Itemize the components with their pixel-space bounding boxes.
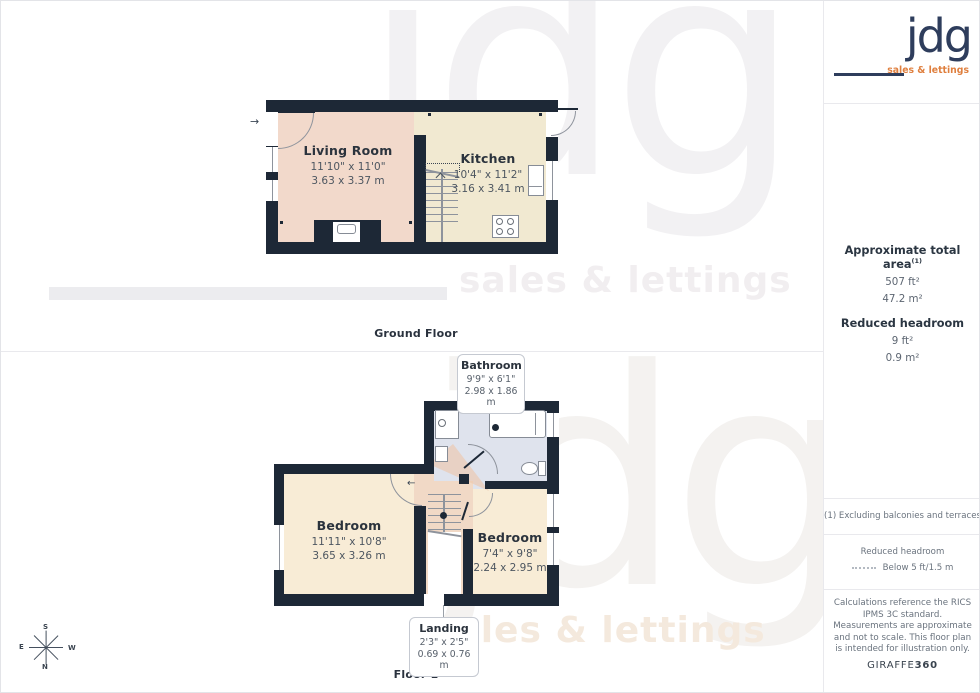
- room-dims-metric: 3.16 x 3.41 m: [432, 183, 544, 195]
- watermark-tagline-ground: sales & lettings: [459, 263, 792, 299]
- ground-floor-title: Ground Floor: [331, 327, 501, 340]
- compass-north: N: [42, 663, 48, 671]
- footnote: (1) Excluding balconies and terraces: [824, 511, 980, 521]
- toilet-tank: [538, 461, 546, 476]
- area-summary: Approximate total area(1) 507 ft² 47.2 m…: [824, 244, 980, 364]
- door-swing-arrow-icon: ←: [407, 479, 415, 489]
- disclaimer-text: Calculations reference the RICS IPMS 3C …: [832, 598, 973, 656]
- sidebar-divider: [824, 589, 980, 590]
- legend-value: Below 5 ft/1.5 m: [883, 563, 954, 573]
- room-dims-imperial: 10'4" x 11'2": [432, 169, 544, 181]
- room-name: Bedroom: [282, 518, 416, 533]
- toilet-bowl: [521, 462, 538, 475]
- compass-west: W: [68, 644, 76, 652]
- fireplace-hearth: [337, 224, 356, 234]
- provider-logo: GIRAFFE360: [824, 660, 980, 671]
- stairwell-wall-gap: [424, 594, 444, 606]
- room-name: Bedroom: [458, 530, 562, 545]
- area-metric: 47.2 m²: [824, 293, 980, 305]
- dimension-tick: [280, 221, 283, 224]
- area-title: Approximate total area(1): [824, 244, 980, 271]
- watermark-bar: [49, 287, 447, 300]
- headroom-title: Reduced headroom: [824, 317, 980, 330]
- room-dims-metric: 3.65 x 3.26 m: [282, 550, 416, 562]
- bathtub-divider: [535, 413, 536, 435]
- compass-south: S: [43, 623, 48, 631]
- hob-burner: [496, 218, 503, 225]
- dimension-tick: [409, 221, 412, 224]
- room-dims-metric: 0.69 x 0.76 m: [413, 649, 475, 671]
- window: [266, 179, 278, 202]
- landing-callout: Landing 2'3" x 2'5" 0.69 x 0.76 m: [409, 617, 479, 677]
- sidebar: jdg sales & lettings Approximate total a…: [824, 1, 980, 693]
- room-name: Landing: [413, 622, 475, 635]
- area-note-ref: (1): [912, 257, 922, 265]
- headroom-metric: 0.9 m²: [824, 352, 980, 364]
- room-dims-imperial: 9'9" x 6'1": [461, 374, 521, 385]
- window: [547, 493, 559, 528]
- wall: [266, 242, 558, 254]
- provider-name: GIRAFFE: [867, 660, 915, 671]
- dotted-line-icon: [852, 567, 876, 569]
- shower-head: [492, 424, 499, 431]
- dimension-tick: [539, 113, 542, 116]
- living-room-label: Living Room 11'10" x 11'0" 3.63 x 3.37 m: [279, 143, 417, 187]
- room-name: Kitchen: [432, 151, 544, 166]
- compass-rose: S E W N: [19, 621, 75, 673]
- hob: [492, 215, 519, 238]
- dimension-tick: [428, 113, 431, 116]
- provider-suffix: 360: [915, 660, 938, 671]
- sidebar-divider: [824, 103, 980, 104]
- watermark-tagline-floor1: sales & lettings: [433, 613, 766, 649]
- room-dims-metric: 2.24 x 2.95 m: [458, 562, 562, 574]
- entry-door-leaf: [278, 111, 315, 113]
- stairwell-void: [428, 532, 461, 594]
- room-dims-imperial: 7'4" x 9'8": [458, 548, 562, 560]
- sidebar-divider: [824, 534, 980, 535]
- sink-basin: [438, 419, 446, 427]
- bathroom-cupboard: [435, 446, 448, 462]
- entry-door-gap: [266, 112, 278, 149]
- window: [546, 160, 558, 201]
- newel-post: [440, 512, 447, 519]
- agency-tagline: sales & lettings: [887, 65, 969, 76]
- room-dims-imperial: 11'11" x 10'8": [282, 536, 416, 548]
- wall: [424, 401, 434, 474]
- callout-leader-line: [443, 605, 444, 617]
- window: [547, 412, 559, 438]
- room-name: Living Room: [279, 143, 417, 158]
- hob-burner: [507, 228, 514, 235]
- hob-burner: [507, 218, 514, 225]
- panel-divider: [1, 351, 823, 352]
- compass-east: E: [19, 643, 24, 651]
- area-title-text: Approximate total area: [845, 244, 961, 271]
- legend-row: Below 5 ft/1.5 m: [824, 563, 980, 573]
- room-dims-metric: 3.63 x 3.37 m: [279, 175, 417, 187]
- agency-logo: jdg: [906, 13, 971, 59]
- room-dims-imperial: 2'3" x 2'5": [413, 637, 475, 648]
- area-imperial: 507 ft²: [824, 276, 980, 288]
- room-dims-imperial: 11'10" x 11'0": [279, 161, 417, 173]
- wall-stub: [459, 474, 469, 484]
- legend-title: Reduced headroom: [824, 547, 980, 557]
- entry-arrow-icon: →: [250, 116, 259, 127]
- bedroom1-door-leaf: [390, 472, 422, 474]
- room-dims-metric: 2.98 x 1.86 m: [461, 386, 521, 408]
- sidebar-divider: [824, 498, 980, 499]
- window: [266, 146, 278, 173]
- hob-burner: [496, 228, 503, 235]
- headroom-imperial: 9 ft²: [824, 335, 980, 347]
- room-name: Bathroom: [461, 359, 521, 372]
- bathroom-callout: Bathroom 9'9" x 6'1" 2.98 x 1.86 m: [457, 354, 525, 414]
- bedroom2-label: Bedroom 7'4" x 9'8" 2.24 x 2.95 m: [458, 530, 562, 574]
- kitchen-label: Kitchen 10'4" x 11'2" 3.16 x 3.41 m: [432, 151, 544, 195]
- bathroom-sink: [435, 410, 459, 439]
- wall-stub: [485, 481, 547, 489]
- kitchen-door-leaf: [550, 108, 578, 110]
- bedroom1-label: Bedroom 11'11" x 10'8" 3.65 x 3.26 m: [282, 518, 416, 562]
- floorplan-page: jdg sales & lettings jdg sales & letting…: [0, 0, 980, 693]
